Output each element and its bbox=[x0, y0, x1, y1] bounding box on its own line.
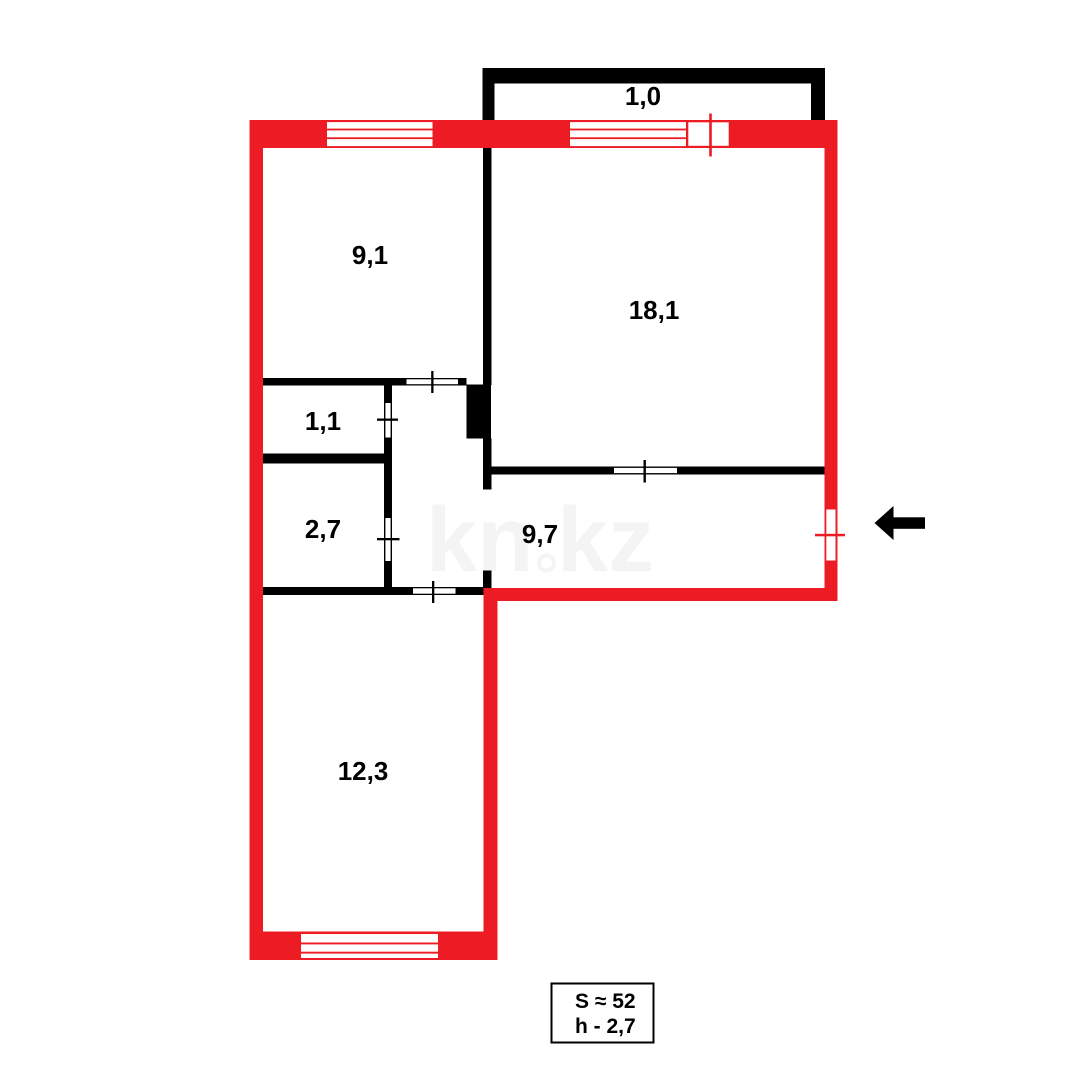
svg-text:18,1: 18,1 bbox=[629, 295, 680, 325]
svg-text:9,1: 9,1 bbox=[352, 240, 388, 270]
svg-text:kn: kn bbox=[426, 489, 533, 591]
svg-text:kz: kz bbox=[557, 489, 654, 591]
svg-text:9,7: 9,7 bbox=[522, 519, 558, 549]
svg-text:2,7: 2,7 bbox=[305, 514, 341, 544]
svg-text:h - 2,7: h - 2,7 bbox=[575, 1015, 636, 1038]
svg-text:1,1: 1,1 bbox=[305, 406, 341, 436]
svg-text:1,0: 1,0 bbox=[625, 81, 661, 111]
svg-text:12,3: 12,3 bbox=[338, 756, 389, 786]
svg-text:S ≈ 52: S ≈ 52 bbox=[575, 990, 636, 1013]
